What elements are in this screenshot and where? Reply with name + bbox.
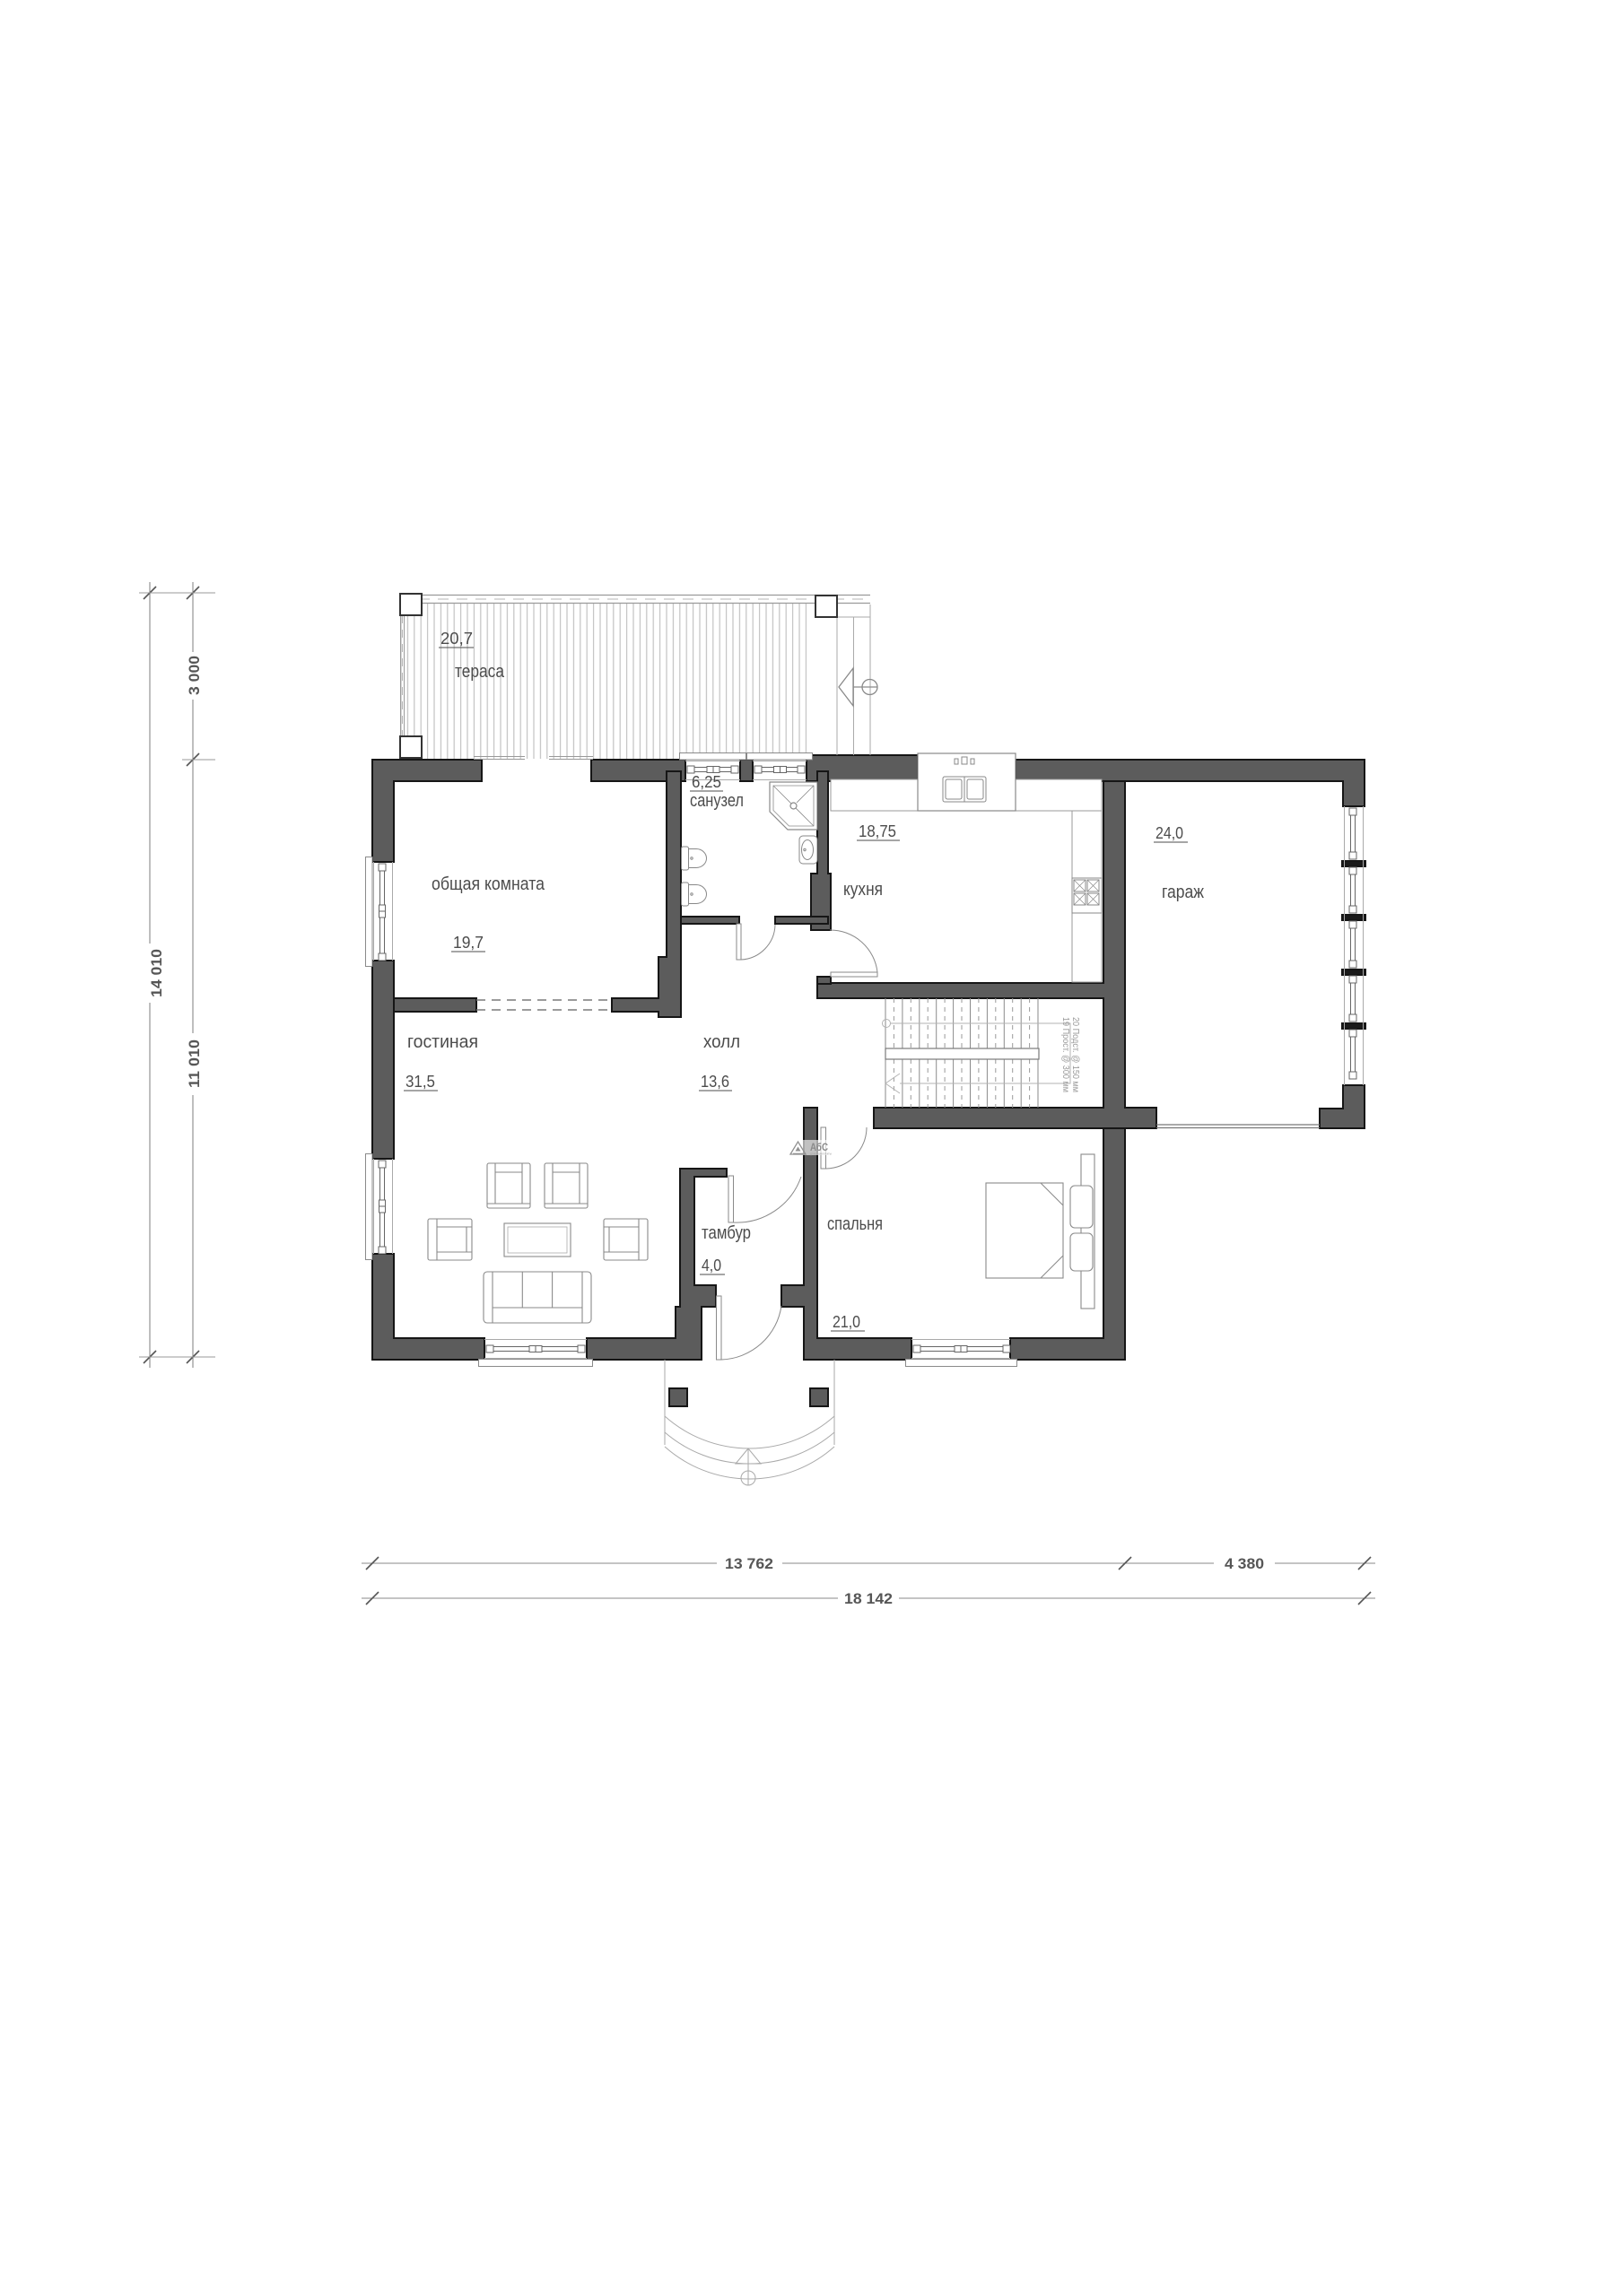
- svg-text:гараж: гараж: [1162, 883, 1205, 902]
- svg-text:санузел: санузел: [690, 791, 744, 811]
- svg-text:домокомплекты: домокомплекты: [810, 1152, 832, 1156]
- svg-text:общая комната: общая комната: [432, 874, 545, 894]
- svg-text:18 142: 18 142: [844, 1590, 893, 1607]
- svg-text:20,7: 20,7: [440, 630, 473, 648]
- svg-text:21,0: 21,0: [833, 1313, 860, 1331]
- svg-text:31,5: 31,5: [405, 1073, 435, 1091]
- svg-text:13,6: 13,6: [701, 1073, 729, 1091]
- svg-text:6,25: 6,25: [692, 773, 721, 791]
- svg-text:кухня: кухня: [843, 880, 883, 900]
- svg-text:гостиная: гостиная: [407, 1032, 478, 1052]
- svg-text:11 010: 11 010: [186, 1039, 203, 1088]
- svg-text:24,0: 24,0: [1155, 824, 1183, 842]
- svg-text:холл: холл: [703, 1032, 740, 1052]
- svg-text:спальня: спальня: [827, 1214, 883, 1234]
- svg-text:4 380: 4 380: [1225, 1555, 1264, 1572]
- svg-text:13 762: 13 762: [725, 1555, 773, 1572]
- svg-text:18,75: 18,75: [859, 822, 896, 840]
- svg-text:тамбур: тамбур: [702, 1223, 751, 1243]
- svg-text:19 Прост. @ 300 мм: 19 Прост. @ 300 мм: [1060, 1017, 1070, 1092]
- svg-text:тераса: тераса: [455, 662, 505, 682]
- svg-text:14 010: 14 010: [148, 949, 165, 997]
- svg-text:20 Подст. @ 150 мм: 20 Подст. @ 150 мм: [1070, 1017, 1080, 1092]
- svg-text:19,7: 19,7: [453, 934, 484, 952]
- svg-text:4,0: 4,0: [702, 1257, 721, 1274]
- svg-text:3 000: 3 000: [186, 656, 203, 695]
